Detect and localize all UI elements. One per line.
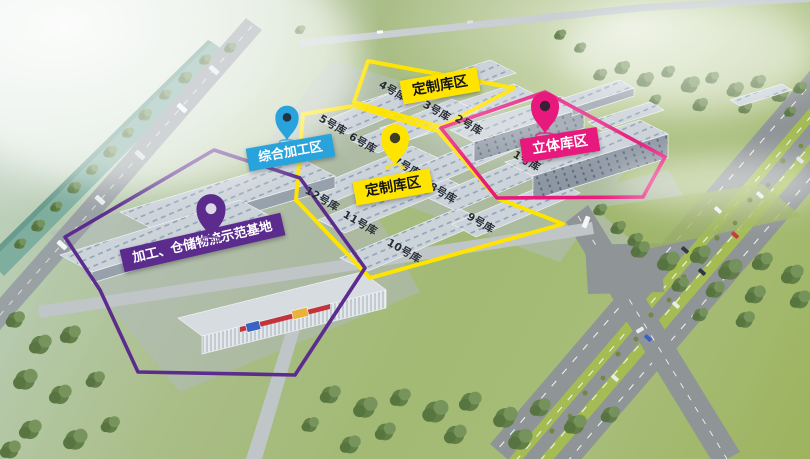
aerial-site-render: 1号库 2号库 3号库 4号库 5号库 6号库 7号库 8号库 9号库 10号库… bbox=[0, 0, 810, 459]
scene-layer bbox=[0, 0, 810, 459]
top-road bbox=[298, 0, 810, 47]
